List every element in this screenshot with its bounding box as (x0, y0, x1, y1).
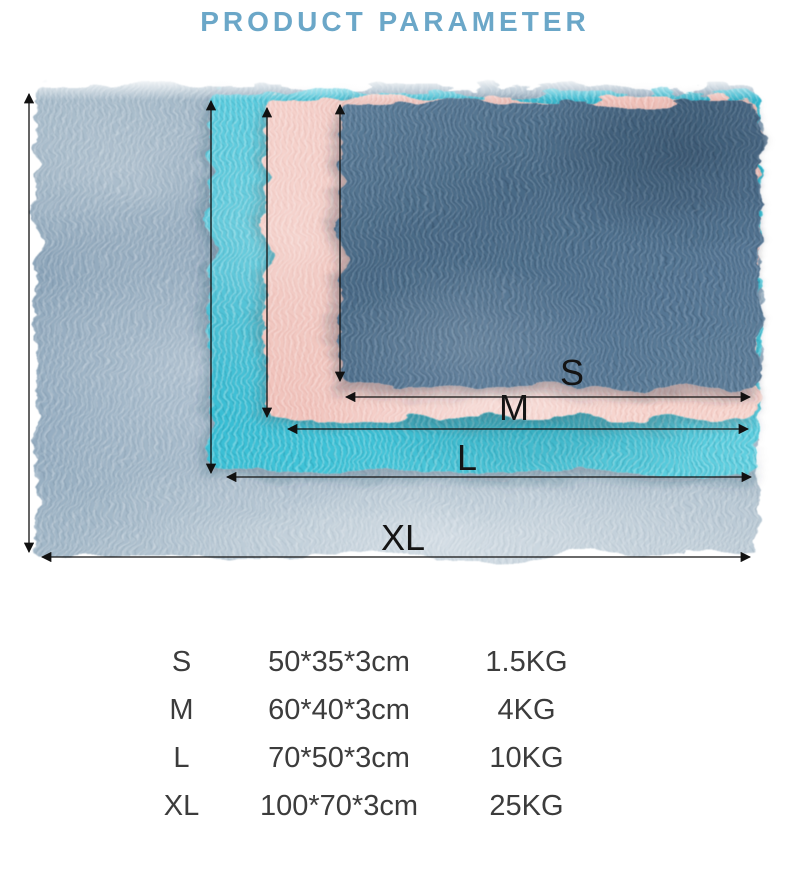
weight-cell: 1.5KG (404, 638, 649, 686)
dimensions-cell: 50*35*3cm (274, 638, 404, 686)
size-label-xl: XL (381, 520, 425, 556)
size-label-s: S (560, 355, 584, 391)
top-white-fade (20, 68, 780, 100)
size-diagram: S M L XL (0, 0, 790, 610)
mat-s-dark-blue (341, 103, 760, 387)
size-cell: L (89, 734, 274, 782)
weight-cell: 4KG (404, 686, 649, 734)
size-spec-table: S 50*35*3cm 1.5KG M 60*40*3cm 4KG L 70*5… (89, 638, 649, 830)
size-cell: S (89, 638, 274, 686)
dimensions-cell: 100*70*3cm (274, 782, 404, 830)
right-white-fade (762, 68, 790, 568)
size-cell: XL (89, 782, 274, 830)
weight-cell: 10KG (404, 734, 649, 782)
product-parameter-page: PRODUCT PARAMETER (0, 0, 790, 887)
size-label-m: M (499, 390, 529, 426)
weight-cell: 25KG (404, 782, 649, 830)
dimensions-cell: 60*40*3cm (274, 686, 404, 734)
size-cell: M (89, 686, 274, 734)
dimensions-cell: 70*50*3cm (274, 734, 404, 782)
size-label-l: L (457, 440, 477, 476)
